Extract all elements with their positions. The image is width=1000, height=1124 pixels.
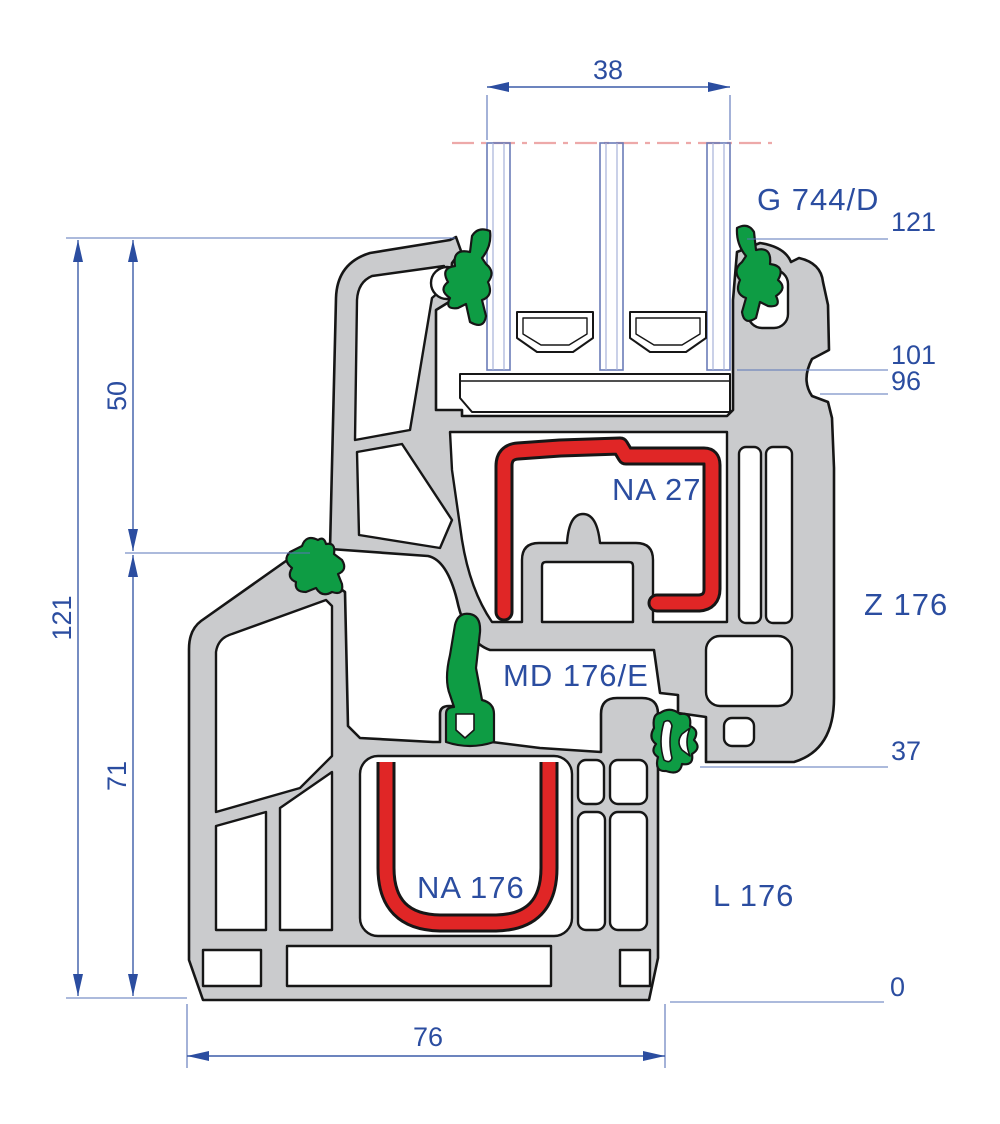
- hardware-channel: [542, 562, 633, 622]
- ext-line-bottom: [66, 998, 665, 1068]
- level-mark-notch: 96: [891, 366, 921, 396]
- label-mid-seal: MD 176/E: [503, 658, 649, 693]
- ext-lines-glass: [487, 95, 730, 140]
- level-mark-base: 0: [890, 972, 905, 1002]
- frame-right-chamber-4: [610, 812, 647, 930]
- label-frame: L 176: [713, 878, 794, 913]
- sash-right-chamber-2: [766, 447, 792, 623]
- glazing-unit: [460, 143, 730, 412]
- glazing-gasket-right: [736, 226, 782, 321]
- frame-base-slot-1: [203, 950, 261, 986]
- technical-drawing-canvas: 38 121 50 71 76 121 101 96 37 0: [0, 0, 1000, 1124]
- dim-glass-width: 38: [593, 55, 623, 85]
- dim-overall-height: 121: [47, 595, 77, 640]
- profile-section-svg: 38 121 50 71 76 121 101 96 37 0: [0, 0, 1000, 1124]
- level-mark-top: 121: [891, 207, 936, 237]
- frame-right-chamber-2: [610, 760, 647, 804]
- frame-right-chamber-3: [578, 812, 605, 930]
- label-glazing: G 744/D: [757, 182, 879, 217]
- glass-pane-3: [707, 143, 730, 370]
- level-mark-sash-bottom: 37: [891, 736, 921, 766]
- dim-upper-height: 50: [102, 381, 132, 411]
- label-sash: Z 176: [864, 587, 948, 622]
- frame-left-chamber-2: [216, 812, 266, 930]
- dim-frame-width: 76: [413, 1022, 443, 1052]
- interlock-gasket: [651, 710, 697, 773]
- sash-right-chamber-1: [739, 447, 761, 623]
- glazing-packer: [460, 374, 730, 412]
- sash-bottom-chamber: [706, 636, 792, 706]
- dim-lower-height: 71: [102, 761, 132, 791]
- glass-pane-2: [600, 143, 623, 370]
- frame-base-slot-2: [287, 946, 551, 986]
- label-frame-gasket: NA 176: [417, 870, 525, 905]
- sash-bottom-slot: [724, 718, 754, 746]
- label-sash-gasket: NA 27: [612, 472, 701, 507]
- glass-pane-1: [487, 143, 510, 370]
- frame-right-chamber-1: [578, 760, 604, 804]
- frame-base-slot-3: [620, 950, 650, 986]
